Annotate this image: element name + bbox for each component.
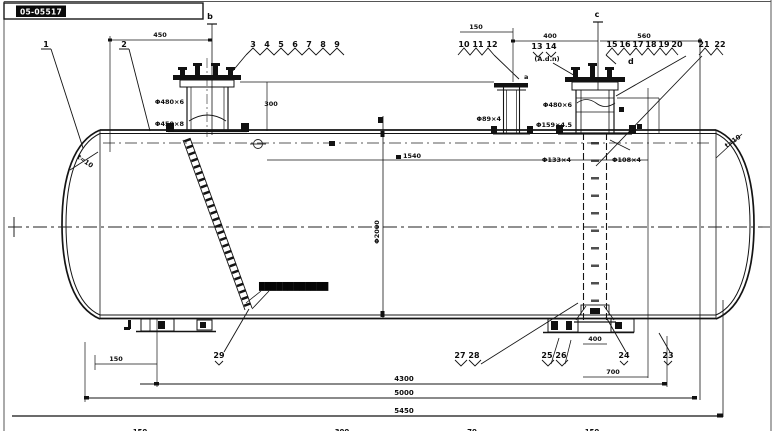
section-mark-d: d bbox=[628, 57, 634, 66]
section-mark-a: a bbox=[524, 73, 528, 81]
dim-top-mid: 400 bbox=[543, 32, 557, 40]
callout-14: 14 bbox=[545, 42, 557, 51]
ladder-note-leader-2 bbox=[252, 291, 269, 309]
callouts-bottom: 29 27 28 25 26 24 23 bbox=[213, 303, 673, 366]
manhole-upper-label: Φ480×6 bbox=[155, 98, 185, 106]
callout-22: 22 bbox=[714, 40, 725, 49]
callout-26: 26 bbox=[555, 351, 567, 360]
callout-row-d-leader-1 bbox=[616, 56, 686, 96]
callout-2: 2 bbox=[121, 40, 127, 49]
dim-seam-span: 1540 bbox=[403, 152, 422, 160]
weld-mark bbox=[329, 141, 335, 146]
callout-row-b-zigzag bbox=[458, 48, 494, 55]
riser-bolts bbox=[571, 63, 614, 77]
manhole-lower-label: Φ450×8 bbox=[155, 120, 185, 128]
drawing-svg: 05-05517 bbox=[0, 0, 776, 431]
internal-ladder bbox=[183, 138, 252, 310]
callout-row-a-zigzag bbox=[246, 48, 344, 55]
callout-row-d-zigzag bbox=[606, 48, 678, 55]
callout-1: 1 bbox=[43, 40, 49, 49]
callout-row-a-leader bbox=[231, 55, 246, 73]
riser-upper-label: Φ480×6 bbox=[543, 101, 573, 109]
manhole-bolts bbox=[178, 63, 235, 76]
callout-11: 11 bbox=[472, 40, 484, 49]
weld-detail-mark-2 bbox=[637, 124, 642, 129]
tank-drawing-canvas: 05-05517 bbox=[0, 0, 776, 431]
ladder-rungs bbox=[187, 139, 249, 309]
dim-top-right: 560 bbox=[637, 32, 651, 40]
section-mark-b: b bbox=[207, 12, 213, 21]
dim-pipe-width: 400 bbox=[588, 335, 602, 343]
callout-2-leader bbox=[129, 49, 150, 131]
center-lines bbox=[8, 58, 770, 237]
callout-23: 23 bbox=[662, 351, 673, 360]
dim-length-b: 5000 bbox=[394, 389, 414, 397]
riser-lower-label: Φ159×4.5 bbox=[536, 121, 573, 129]
right-head bbox=[716, 130, 754, 319]
small-nozzle-flange bbox=[494, 83, 528, 88]
callout-23-leader bbox=[659, 333, 670, 352]
callout-27: 27 bbox=[454, 351, 465, 360]
dim-length-c: 5450 bbox=[394, 407, 414, 415]
manhole-dished-cover bbox=[189, 115, 226, 121]
callout-1-leader bbox=[51, 49, 83, 148]
weld-detail-mark bbox=[619, 107, 624, 112]
riser-flange bbox=[565, 77, 625, 82]
callout-25: 25 bbox=[541, 351, 553, 360]
extension-lines bbox=[85, 38, 723, 417]
callout-28: 28 bbox=[468, 351, 480, 360]
callout-row-b-leader bbox=[494, 55, 519, 79]
dim-top-left: 450 bbox=[153, 31, 167, 39]
dim-nozzle: 150 bbox=[469, 23, 483, 31]
callout-29: 29 bbox=[213, 351, 225, 360]
saddle-right bbox=[543, 319, 634, 333]
dim-neck-height: 300 bbox=[264, 100, 278, 108]
small-nozzle-label: Φ89×4 bbox=[476, 115, 501, 123]
callout-24: 24 bbox=[618, 351, 630, 360]
section-mark-c: c bbox=[595, 10, 600, 19]
saddle-left bbox=[124, 319, 216, 332]
dimensions-bottom: 150 400 700 4300 5000 5450 150 300 70 15… bbox=[12, 335, 723, 431]
nozzle-small bbox=[491, 83, 533, 134]
dim-saddle-offset: 150 bbox=[109, 355, 123, 363]
title-block: 05-05517 bbox=[4, 3, 203, 19]
dim-saddle-span: 700 bbox=[606, 368, 620, 376]
dim-length-a: 4300 bbox=[394, 375, 414, 383]
dim-diameter: Φ2000 bbox=[373, 220, 381, 244]
drawing-frame bbox=[4, 0, 771, 431]
drawing-code: 05-05517 bbox=[20, 8, 62, 17]
ladder-note: ████████████ bbox=[258, 281, 328, 291]
callout-13: 13 bbox=[531, 42, 542, 51]
callout-13-note: (A.d.n) bbox=[534, 55, 559, 63]
